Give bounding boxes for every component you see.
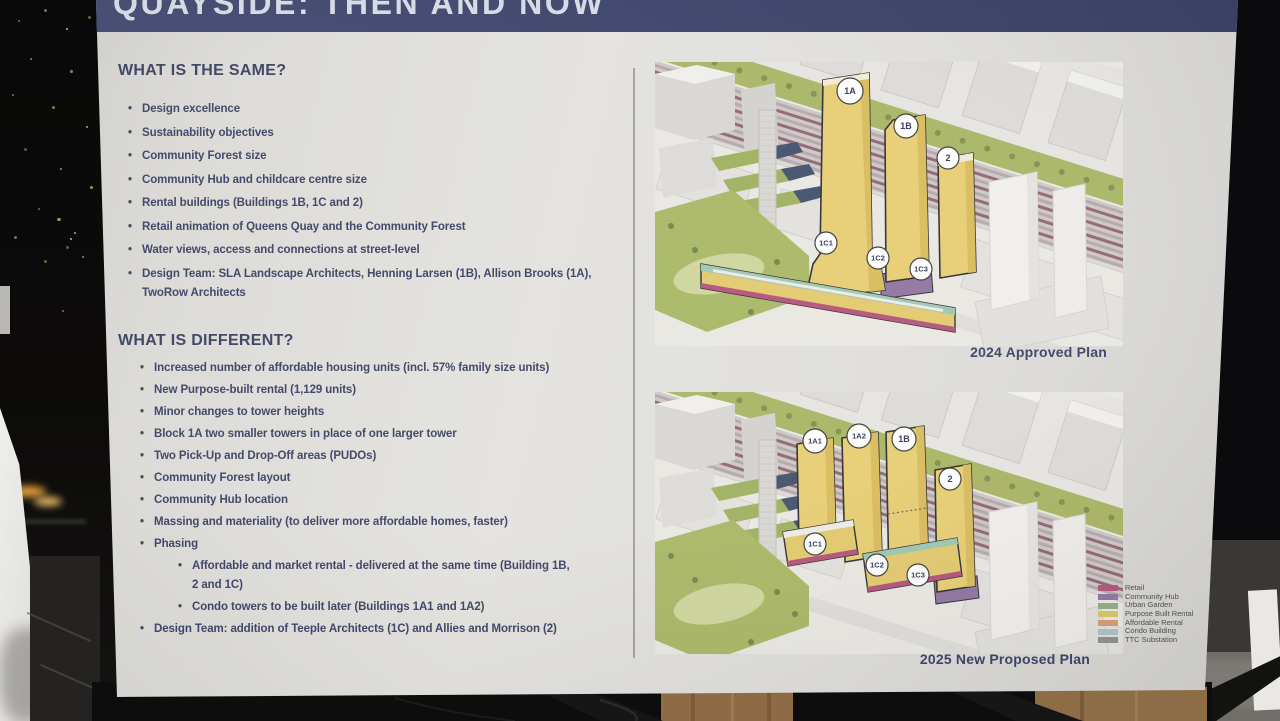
section-heading-different: WHAT IS DIFFERENT? xyxy=(118,332,294,350)
bullet-item: •Community Forest size xyxy=(128,147,620,166)
building-badge: 1A2 xyxy=(847,424,871,448)
city-light-dot xyxy=(44,9,47,12)
floor-left xyxy=(30,556,100,721)
bullet-item: •Massing and materiality (to deliver mor… xyxy=(140,513,632,532)
city-light-dot xyxy=(12,94,14,96)
bullet-item: •Rental buildings (Buildings 1B, 1C and … xyxy=(128,194,620,213)
bullet-text: Design Team: addition of Teeple Architec… xyxy=(154,620,557,639)
bullet-marker: • xyxy=(140,447,154,466)
bullet-text: Sustainability objectives xyxy=(142,124,274,143)
bullet-item: •Design Team: addition of Teeple Archite… xyxy=(140,620,632,639)
bullet-marker: • xyxy=(128,241,142,260)
svg-text:1C2: 1C2 xyxy=(871,254,885,263)
building-badge: 1C1 xyxy=(815,232,837,254)
what-is-same-list: •Design excellence•Sustainability object… xyxy=(128,100,628,307)
city-light-dot xyxy=(30,58,32,60)
bullet-item: •Minor changes to tower heights xyxy=(140,403,632,422)
city-light-dot xyxy=(24,148,27,151)
legend-swatch xyxy=(1098,611,1118,617)
plan-caption-2025: 2025 New Proposed Plan xyxy=(898,651,1090,667)
bullet-marker: • xyxy=(140,403,154,422)
bullet-text: Community Forest layout xyxy=(154,469,290,488)
svg-text:1C3: 1C3 xyxy=(914,265,928,274)
street-light-glow xyxy=(34,497,62,506)
legend-swatch xyxy=(1098,594,1118,600)
legend: RetailCommunity HubUrban GardenPurpose B… xyxy=(1098,584,1208,645)
svg-text:1A2: 1A2 xyxy=(852,432,866,441)
bullet-marker: • xyxy=(140,359,154,378)
city-light-dot xyxy=(70,70,73,73)
bullet-item: •Block 1A two smaller towers in place of… xyxy=(140,425,632,444)
svg-text:1A: 1A xyxy=(844,86,856,96)
svg-text:1C3: 1C3 xyxy=(911,571,925,580)
bullet-item: •Design Team: SLA Landscape Architects, … xyxy=(128,265,620,303)
city-light-dot xyxy=(82,256,84,258)
building-badge: 1C2 xyxy=(866,554,888,576)
bullet-text: Design excellence xyxy=(142,100,240,119)
legend-swatch xyxy=(1098,585,1118,591)
bullet-text: Massing and materiality (to deliver more… xyxy=(154,513,508,532)
legend-swatch xyxy=(1098,629,1118,635)
bullet-text: Minor changes to tower heights xyxy=(154,403,324,422)
bullet-item: •Community Hub location xyxy=(140,491,632,510)
svg-text:1C2: 1C2 xyxy=(870,561,884,570)
city-light-dot xyxy=(66,246,69,249)
bullet-item: •Water views, access and connections at … xyxy=(128,241,620,260)
bullet-marker: • xyxy=(140,425,154,444)
building-badge: 1C1 xyxy=(804,533,826,555)
bullet-marker: • xyxy=(128,147,142,166)
legend-swatch xyxy=(1098,620,1118,626)
bullet-text: Two Pick-Up and Drop-Off areas (PUDOs) xyxy=(154,447,376,466)
bullet-text: Condo towers to be built later (Building… xyxy=(192,598,484,617)
plan-render-2025: 1A11A21B21C11C21C3 xyxy=(655,392,1123,654)
building-badge: 1A1 xyxy=(803,429,827,453)
bullet-item: •Retail animation of Queens Quay and the… xyxy=(128,218,620,237)
bullet-item: •Sustainability objectives xyxy=(128,124,620,143)
bullet-item: •New Purpose-built rental (1,129 units) xyxy=(140,381,632,400)
bullet-text: Community Forest size xyxy=(142,147,266,166)
city-light-dot xyxy=(62,310,64,312)
bullet-text: Affordable and market rental - delivered… xyxy=(192,557,578,595)
bullet-item: •Community Hub and childcare centre size xyxy=(128,171,620,190)
city-light-dot xyxy=(44,260,47,263)
bullet-marker: • xyxy=(128,194,142,213)
city-light-dot xyxy=(66,28,68,30)
plan-caption-2024: 2024 Approved Plan xyxy=(915,344,1107,360)
legend-row: TTC Substation xyxy=(1098,636,1208,645)
poster-board: QUAYSIDE: THEN AND NOW WHAT IS THE SAME?… xyxy=(0,0,1280,721)
building-badge: 1B xyxy=(894,114,918,138)
city-light-dot xyxy=(90,186,93,189)
poster-title: QUAYSIDE: THEN AND NOW xyxy=(113,0,605,22)
bullet-item: •Phasing xyxy=(140,535,632,554)
bullet-text: Phasing xyxy=(154,535,198,554)
bullet-marker: • xyxy=(140,535,154,554)
bullet-text: Retail animation of Queens Quay and the … xyxy=(142,218,465,237)
legend-label: TTC Substation xyxy=(1125,636,1177,645)
column-divider xyxy=(633,68,635,658)
photo-of-poster: { "title": "QUAYSIDE: THEN AND NOW", "sa… xyxy=(0,0,1280,721)
bullet-marker: • xyxy=(128,124,142,143)
bullet-marker: • xyxy=(178,557,192,595)
building-badge: 1B xyxy=(892,427,916,451)
bullet-item: •Design excellence xyxy=(128,100,620,119)
city-light-dot xyxy=(74,232,76,234)
bullet-item: •Affordable and market rental - delivere… xyxy=(178,557,578,595)
bullet-text: Increased number of affordable housing u… xyxy=(154,359,549,378)
bullet-text: Design Team: SLA Landscape Architects, H… xyxy=(142,265,620,303)
bullet-marker: • xyxy=(128,265,142,303)
bullet-marker: • xyxy=(140,620,154,639)
city-light-dot xyxy=(70,238,72,240)
city-light-dot xyxy=(86,126,88,128)
city-light-dot xyxy=(38,208,40,210)
city-light-dot xyxy=(58,218,61,221)
city-light-dot xyxy=(18,20,20,22)
bullet-item: •Increased number of affordable housing … xyxy=(140,359,632,378)
city-light-dot xyxy=(88,16,91,19)
building-badge: 2 xyxy=(939,468,961,490)
svg-text:2: 2 xyxy=(947,474,952,484)
svg-text:2: 2 xyxy=(945,153,950,163)
building-badge: 1A xyxy=(837,78,863,104)
legend-swatch xyxy=(1098,637,1118,643)
bullet-marker: • xyxy=(140,469,154,488)
side-panel-sliver xyxy=(0,286,10,334)
city-light-dot xyxy=(60,168,62,170)
legend-swatch xyxy=(1098,603,1118,609)
bullet-marker: • xyxy=(140,381,154,400)
building-badge: 1C2 xyxy=(867,247,889,269)
bullet-marker: • xyxy=(140,491,154,510)
city-light-dot xyxy=(14,236,17,239)
building-badge: 1C3 xyxy=(910,258,932,280)
city-light-dot xyxy=(52,106,55,109)
bullet-item: •Two Pick-Up and Drop-Off areas (PUDOs) xyxy=(140,447,632,466)
bullet-text: New Purpose-built rental (1,129 units) xyxy=(154,381,356,400)
plan-render-2024: 1A1B21C11C21C3 xyxy=(655,62,1123,346)
svg-text:1C1: 1C1 xyxy=(819,239,833,248)
easel-clip-left xyxy=(543,690,663,721)
bullet-item: •Condo towers to be built later (Buildin… xyxy=(178,598,578,617)
bullet-text: Community Hub and childcare centre size xyxy=(142,171,367,190)
bullet-text: Community Hub location xyxy=(154,491,288,510)
bullet-marker: • xyxy=(128,100,142,119)
bullet-text: Water views, access and connections at s… xyxy=(142,241,420,260)
svg-text:1A1: 1A1 xyxy=(808,437,822,446)
bullet-marker: • xyxy=(128,171,142,190)
what-is-different-list: •Increased number of affordable housing … xyxy=(140,359,640,642)
bullet-text: Rental buildings (Buildings 1B, 1C and 2… xyxy=(142,194,363,213)
building-badge: 1C3 xyxy=(907,564,929,586)
bullet-marker: • xyxy=(140,513,154,532)
svg-text:1C1: 1C1 xyxy=(808,540,822,549)
bullet-marker: • xyxy=(128,218,142,237)
bullet-item: •Community Forest layout xyxy=(140,469,632,488)
svg-text:1B: 1B xyxy=(900,121,912,131)
section-heading-same: WHAT IS THE SAME? xyxy=(118,62,286,80)
bullet-marker: • xyxy=(178,598,192,617)
bullet-text: Block 1A two smaller towers in place of … xyxy=(154,425,457,444)
building-badge: 2 xyxy=(937,147,959,169)
svg-text:1B: 1B xyxy=(898,434,910,444)
